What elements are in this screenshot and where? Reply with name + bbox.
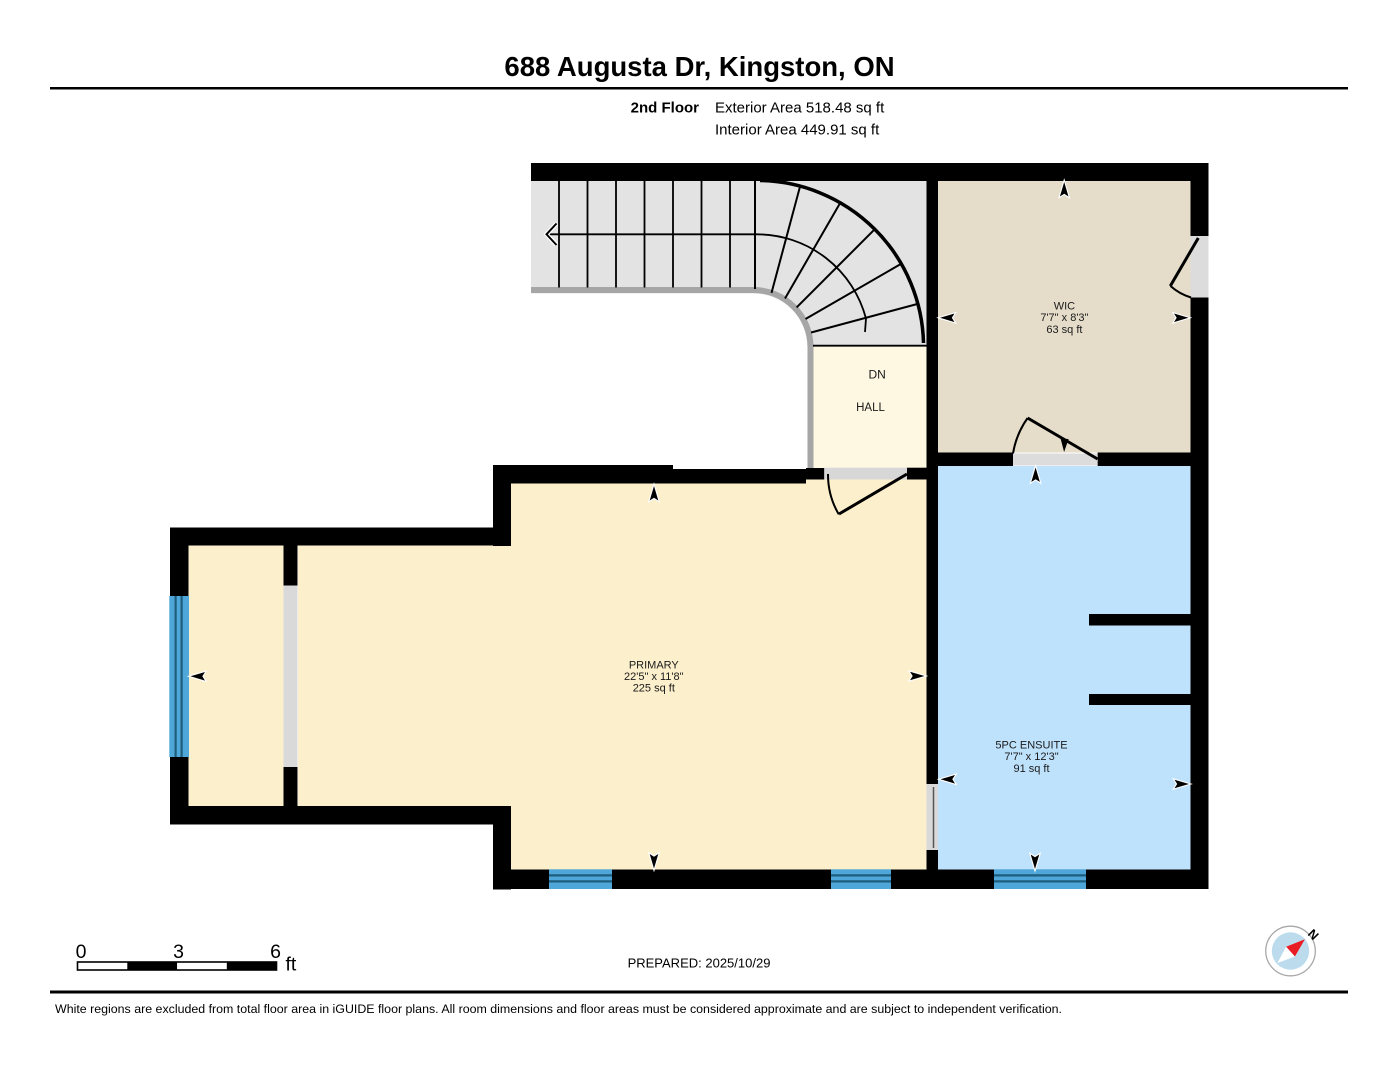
svg-text:DN: DN [869, 368, 886, 382]
svg-text:HALL: HALL [856, 402, 885, 414]
svg-text:225 sq ft: 225 sq ft [633, 683, 675, 695]
svg-text:688 Augusta Dr, Kingston, ON: 688 Augusta Dr, Kingston, ON [504, 51, 894, 82]
svg-text:5PC ENSUITE: 5PC ENSUITE [995, 740, 1067, 752]
svg-text:7'7" x 8'3": 7'7" x 8'3" [1040, 312, 1088, 324]
svg-text:6: 6 [270, 941, 281, 963]
svg-text:91 sq ft: 91 sq ft [1013, 763, 1049, 775]
svg-text:7'7" x 12'3": 7'7" x 12'3" [1004, 751, 1058, 763]
svg-text:WIC: WIC [1054, 301, 1075, 313]
svg-text:White regions are excluded fro: White regions are excluded from total fl… [55, 1002, 1062, 1016]
svg-text:PRIMARY: PRIMARY [629, 659, 680, 671]
svg-text:PREPARED: 2025/10/29: PREPARED: 2025/10/29 [628, 956, 771, 971]
svg-text:22'5" x 11'8": 22'5" x 11'8" [624, 671, 684, 683]
svg-text:Interior Area 449.91 sq ft: Interior Area 449.91 sq ft [715, 121, 880, 138]
svg-text:3: 3 [173, 941, 184, 963]
svg-text:ft: ft [286, 954, 297, 976]
svg-text:2nd Floor: 2nd Floor [631, 99, 699, 116]
svg-text:0: 0 [76, 941, 87, 963]
svg-text:63 sq ft: 63 sq ft [1046, 324, 1082, 336]
svg-text:Exterior Area 518.48 sq ft: Exterior Area 518.48 sq ft [715, 99, 885, 116]
